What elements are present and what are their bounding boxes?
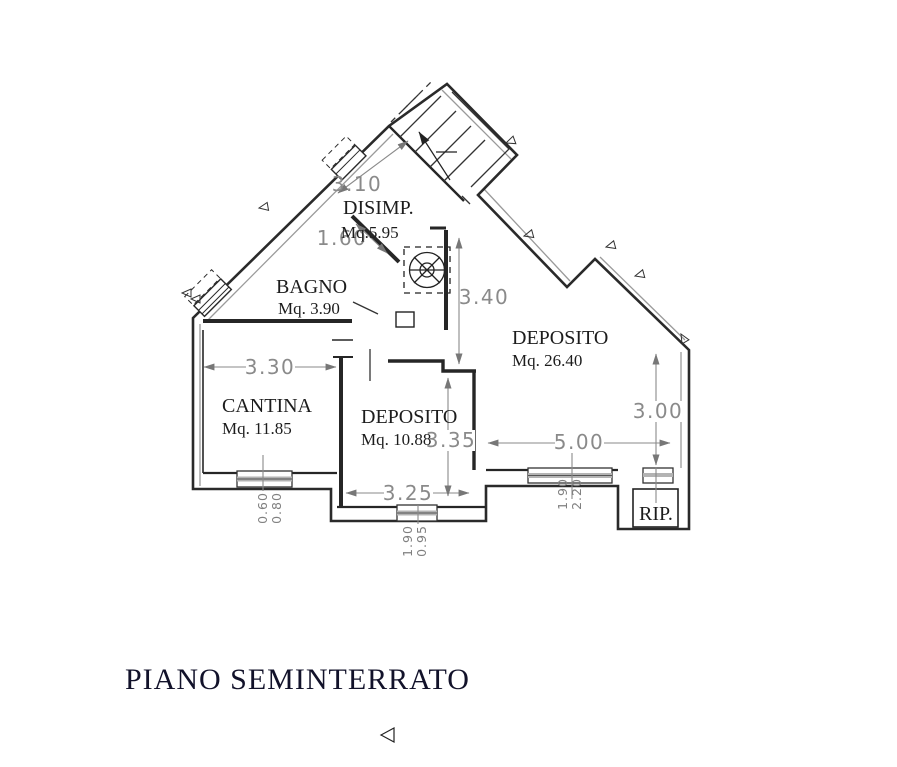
dim-deposito-large-window-height: 1.90 bbox=[555, 478, 570, 510]
room-label-deposito-small: DEPOSITO bbox=[361, 406, 457, 428]
page-title: PIANO SEMINTERRATO bbox=[125, 663, 470, 696]
dim-deposito-large-window-width: 2.20 bbox=[569, 478, 584, 510]
room-area-deposito-small: Mq. 10.88 bbox=[361, 430, 431, 449]
room-area-deposito-large: Mq. 26.40 bbox=[512, 351, 582, 370]
dim-disimp-depth: 3.40 bbox=[459, 285, 510, 309]
room-area-bagno: Mq. 3.90 bbox=[278, 299, 340, 318]
deposito-small-window bbox=[397, 505, 437, 521]
door-leaves bbox=[353, 302, 378, 381]
dim-deposito-small-depth: 3.35 bbox=[426, 428, 477, 452]
dim-deposito-large-depth: 3.00 bbox=[633, 399, 684, 423]
room-label-rip: RIP. bbox=[639, 503, 673, 525]
dim-deposito-large-width: 5.00 bbox=[554, 430, 605, 454]
room-label-deposito-large: DEPOSITO bbox=[512, 327, 608, 349]
extractor-fan-icon bbox=[404, 247, 450, 293]
dim-deposito-small-window-height: 1.90 bbox=[400, 525, 415, 557]
orientation-triangle-icon bbox=[381, 728, 394, 742]
room-area-cantina: Mq. 11.85 bbox=[222, 419, 292, 438]
dim-deposito-small-window-width: 0.95 bbox=[414, 525, 429, 557]
room-label-disimp: DISIMP. bbox=[343, 197, 414, 219]
floor-plan-drawing: 3.30 3.25 3.35 3.40 5.00 3.00 3.10 1.60 … bbox=[0, 0, 897, 767]
bagno-window bbox=[185, 270, 232, 317]
room-label-bagno: BAGNO bbox=[276, 276, 347, 298]
room-area-disimp: Mq.5.95 bbox=[341, 223, 399, 242]
room-label-cantina: CANTINA bbox=[222, 395, 313, 417]
triangle-markers bbox=[182, 136, 689, 344]
floor-plan-page: 3.30 3.25 3.35 3.40 5.00 3.00 3.10 1.60 … bbox=[0, 0, 897, 767]
rip-window bbox=[643, 468, 673, 483]
dim-cantina-window-width: 0.80 bbox=[269, 492, 284, 524]
cantina-window bbox=[237, 471, 292, 487]
dim-stairs-length: 3.10 bbox=[332, 172, 383, 196]
dim-cantina-window-height: 0.60 bbox=[255, 492, 270, 524]
dim-deposito-small-width: 3.25 bbox=[383, 481, 434, 505]
fixture-box bbox=[396, 312, 414, 327]
dim-cantina-width: 3.30 bbox=[245, 355, 296, 379]
exterior-walls bbox=[193, 84, 689, 529]
